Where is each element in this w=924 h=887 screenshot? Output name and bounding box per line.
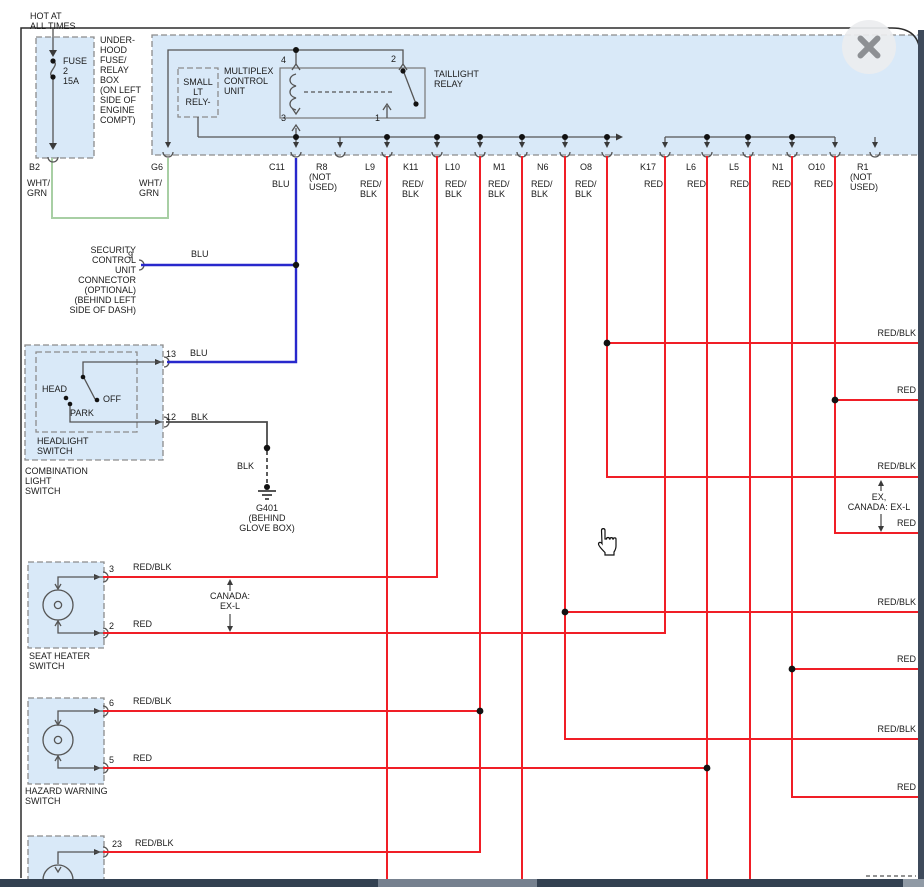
wire-color-label: RED/BLK <box>838 461 916 471</box>
wire-color-label: RED <box>772 179 791 189</box>
fuse-label: FUSE 2 15A <box>63 56 87 86</box>
security-pin-9: 9 <box>128 250 133 260</box>
wire-color-label: RED/BLK <box>838 724 916 734</box>
scrollbar-corner <box>903 879 924 887</box>
multiplex-control-unit-label: MULTIPLEX CONTROL UNIT <box>224 66 273 96</box>
connector-name: K17 <box>640 162 656 172</box>
canada-exl-note: CANADA: EX-L <box>203 591 257 611</box>
pin-2: 2 <box>109 621 114 631</box>
connector-name: O10 <box>808 162 825 172</box>
pin-5: 5 <box>109 755 114 765</box>
hazard-warning-switch-label: HAZARD WARNING SWITCH <box>25 786 108 806</box>
pin-6: 6 <box>109 698 114 708</box>
junction-dots <box>50 47 838 771</box>
wire-color-label: RED/BLK <box>135 838 174 848</box>
connector-name: N1 <box>772 162 784 172</box>
relay-pin-2: 2 <box>391 54 396 64</box>
wire-color-label: RED/ BLK <box>488 179 510 199</box>
wire-color-label: BLK <box>191 412 208 422</box>
wire-color-label: RED <box>687 179 706 189</box>
connector-name: R8 <box>316 162 328 172</box>
pin-13: 13 <box>166 349 176 359</box>
connector-name: L5 <box>729 162 739 172</box>
connector-name: N6 <box>537 162 549 172</box>
connector-name: L6 <box>686 162 696 172</box>
wire-color-label: BLU <box>190 348 208 358</box>
wire-color-label: BLU <box>272 179 290 189</box>
wire-color-label: RED/ BLK <box>360 179 382 199</box>
connector-note: (NOT USED) <box>850 172 878 192</box>
wire-color-label: RED <box>644 179 663 189</box>
wire-blk-ground <box>166 422 276 499</box>
small-lt-relay-label: SMALL LT RELY- <box>178 77 218 107</box>
wire-color-label: RED/ BLK <box>575 179 597 199</box>
relay-pin-1: 1 <box>375 113 380 123</box>
seat-heater-switch-box <box>28 562 104 648</box>
connector-name: R1 <box>857 162 869 172</box>
security-control-unit-label: SECURITY CONTROL UNIT CONNECTOR (OPTIONA… <box>52 245 136 315</box>
ex-canada-exl-note: EX, CANADA: EX-L <box>843 492 915 512</box>
right-window-edge <box>918 30 924 879</box>
horizontal-scrollbar[interactable] <box>0 879 924 887</box>
wire-color-label: RED/ BLK <box>531 179 553 199</box>
headlight-switch-label: HEADLIGHT SWITCH <box>37 436 89 456</box>
connector-name: L9 <box>365 162 375 172</box>
wire-color-label: RED <box>133 619 152 629</box>
wire-color-label: RED/BLK <box>838 328 916 338</box>
off-position-label: OFF <box>103 394 121 404</box>
underhood-box-label: UNDER- HOOD FUSE/ RELAY BOX (ON LEFT SID… <box>100 35 141 125</box>
wire-color-label: RED/BLK <box>133 696 172 706</box>
wire-color-label: RED <box>838 654 916 664</box>
pin-12: 12 <box>166 412 176 422</box>
wire-color-label: RED <box>133 753 152 763</box>
scrollbar-thumb[interactable] <box>378 879 537 887</box>
combination-light-switch-label: COMBINATION LIGHT SWITCH <box>25 466 88 496</box>
wiring-diagram-page: HOT AT ALL TIMES FUSE 2 15A UNDER- HOOD … <box>0 0 924 887</box>
connector-name: G6 <box>151 162 163 172</box>
wire-color-label: WHT/ GRN <box>27 178 50 198</box>
taillight-relay-label: TAILLIGHT RELAY <box>434 69 479 89</box>
relay-pin-3: 3 <box>281 113 286 123</box>
ground-g401-label: G401 (BEHIND GLOVE BOX) <box>238 503 296 533</box>
wire-color-label: RED <box>730 179 749 189</box>
connector-name: C11 <box>269 162 285 172</box>
connector-name: B2 <box>29 162 40 172</box>
connector-name: O8 <box>580 162 592 172</box>
wire-color-label: RED/BLK <box>838 597 916 607</box>
wire-color-label: RED/ BLK <box>445 179 467 199</box>
wire-color-label: RED <box>838 385 916 395</box>
pin-3: 3 <box>109 564 114 574</box>
park-position-label: PARK <box>70 408 94 418</box>
wire-color-label: RED <box>838 518 916 528</box>
wire-color-label: BLK <box>237 461 254 471</box>
connector-name: K11 <box>403 162 418 172</box>
connector-name: L10 <box>445 162 460 172</box>
seat-heater-switch-label: SEAT HEATER SWITCH <box>29 651 90 671</box>
close-button[interactable] <box>842 20 896 74</box>
connector-name: M1 <box>493 162 506 172</box>
head-position-label: HEAD <box>42 384 67 394</box>
hand-cursor-icon <box>599 529 617 555</box>
wire-color-label: RED/BLK <box>133 562 172 572</box>
wire-color-label: RED <box>838 782 916 792</box>
wire-color-label: RED/ BLK <box>402 179 424 199</box>
wire-color-label: WHT/ GRN <box>139 178 162 198</box>
connector-note: (NOT USED) <box>309 172 337 192</box>
hot-at-all-times-label: HOT AT ALL TIMES <box>30 11 76 31</box>
wire-color-label: BLU <box>191 249 209 259</box>
relay-pin-4: 4 <box>281 55 286 65</box>
pin-23: 23 <box>112 839 122 849</box>
wire-color-label: RED <box>814 179 833 189</box>
